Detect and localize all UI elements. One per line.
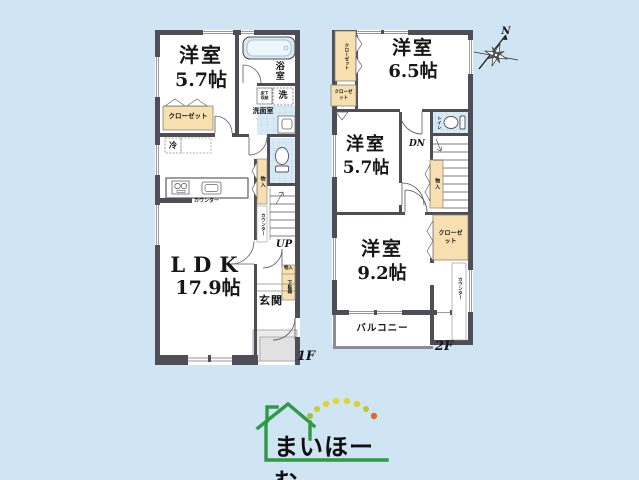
washroom-label: 洗面室 xyxy=(247,107,279,114)
logo-dot xyxy=(371,413,377,419)
toilet-label-2f: トイレ xyxy=(434,113,442,132)
logo-dot xyxy=(307,413,313,419)
logo-dot xyxy=(354,401,360,407)
fridge-label: 冷 xyxy=(165,138,181,153)
storage-label-2f: 物入 xyxy=(430,166,443,202)
closet-label-1f: クローゼット xyxy=(163,113,213,120)
closet-b-label: クローゼット xyxy=(334,86,353,105)
logo-dot xyxy=(314,406,320,412)
counter-label-2f: カウンター xyxy=(453,267,465,309)
floor-1-plan: 洋室 5.7帖 クローゼット 浴室 床下収納 洗 洗面室 冷 カウンター 物入 … xyxy=(153,28,305,370)
floorplan-canvas: 洋室 5.7帖 クローゼット 浴室 床下収納 洗 洗面室 冷 カウンター 物入 … xyxy=(0,0,639,480)
hall-storage-label: 物入 xyxy=(257,161,267,202)
compass: N xyxy=(470,26,522,76)
ldk-name-label: LDK xyxy=(163,254,253,276)
toilet-icon-2f xyxy=(444,116,465,129)
maihome-logo: まいほーむ xyxy=(250,394,395,469)
logo-dot xyxy=(323,401,329,407)
logo-text: まいほーむ xyxy=(274,427,395,480)
ldk-size-label: 17.9帖 xyxy=(163,279,253,299)
washroom-sink-icon xyxy=(278,116,295,133)
stairs-up-label: UP xyxy=(273,240,295,251)
bath-label: 浴室 xyxy=(272,56,284,86)
compass-north-label: N xyxy=(499,27,513,38)
balcony-label: バルコニー xyxy=(350,324,415,334)
toilet-icon-1f xyxy=(276,148,289,173)
room-size-bedroom-a: 6.5帖 xyxy=(373,63,453,82)
kitchen-counter-label: カウンター xyxy=(179,199,234,204)
entrance-porch-steps xyxy=(253,330,297,361)
floor-2-plan: クローゼット クローゼット 洋室 6.5帖 トイレ 洋室 5.7帖 DN 物入 … xyxy=(327,27,477,357)
floor-tag-2f: 2F xyxy=(434,340,454,354)
shoe-box-top-label: 物入 xyxy=(282,267,295,272)
hall-counter-label: カウンター xyxy=(257,207,267,241)
logo-dot xyxy=(344,398,350,404)
logo-dot xyxy=(363,406,369,412)
bathtub-icon xyxy=(243,37,295,59)
room-label-bedroom-a: 洋室 xyxy=(373,39,453,59)
room-size-bedroom-c: 9.2帖 xyxy=(342,265,422,284)
room-size-bedroom-1f: 5.7帖 xyxy=(161,71,241,91)
room-size-bedroom-b: 5.7帖 xyxy=(331,160,401,178)
logo-dot xyxy=(333,398,339,404)
closet-a-label: クローゼット xyxy=(335,33,356,79)
logo-dots-arc xyxy=(307,398,377,419)
stairs-down-label: DN xyxy=(405,140,429,149)
entrance-label: 玄関 xyxy=(251,295,291,307)
room-label-bedroom-1f: 洋室 xyxy=(161,45,241,66)
room-label-bedroom-c: 洋室 xyxy=(342,240,422,260)
floor-storage-label: 床下収納 xyxy=(259,91,269,102)
room-label-bedroom-b: 洋室 xyxy=(331,136,401,155)
closet-c-label: クローゼット xyxy=(437,220,464,255)
floor-tag-1f: 1F xyxy=(296,350,316,364)
compass-rose xyxy=(470,26,522,76)
washer-label: 洗 xyxy=(273,88,293,105)
